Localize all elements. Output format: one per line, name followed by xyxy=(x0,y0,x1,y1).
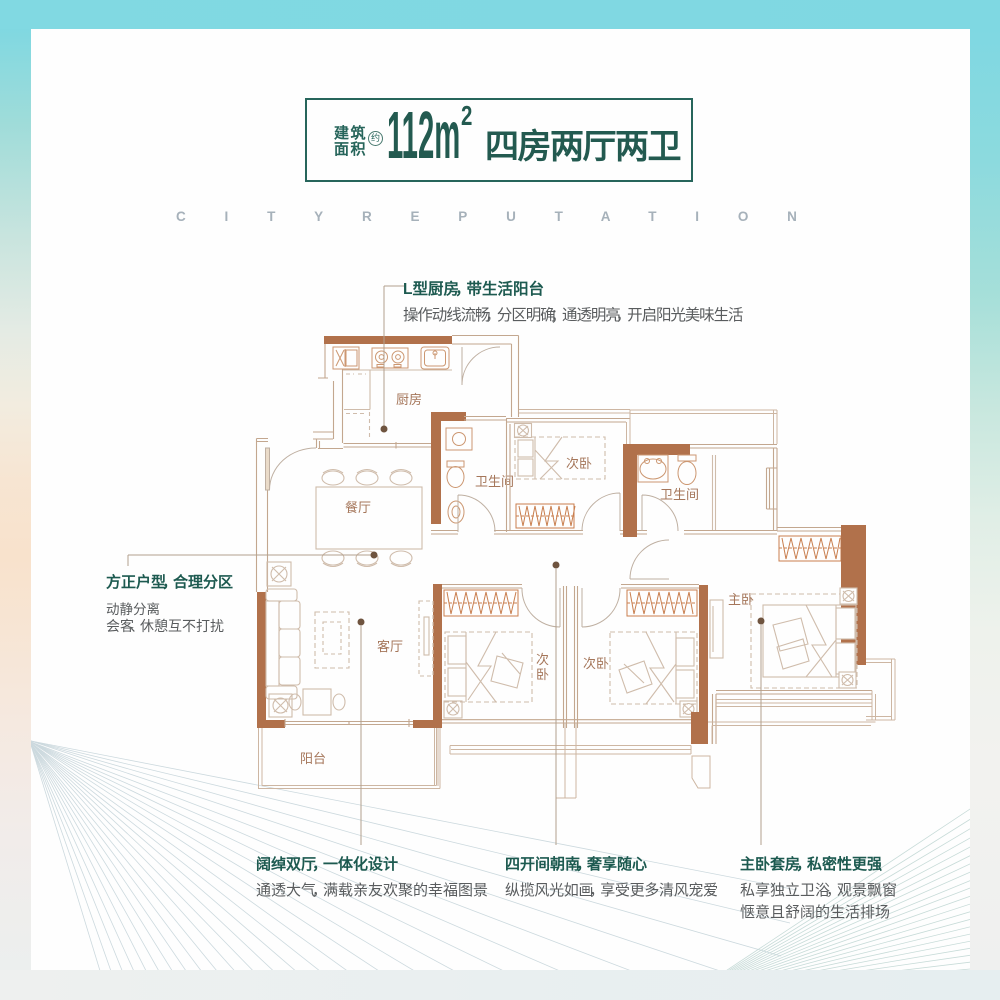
svg-text:厨房: 厨房 xyxy=(396,392,422,407)
svg-text:主卧: 主卧 xyxy=(728,592,754,607)
svg-text:阳台: 阳台 xyxy=(300,751,326,766)
svg-text:次卧: 次卧 xyxy=(583,656,609,671)
svg-text:客厅: 客厅 xyxy=(377,639,403,654)
svg-text:次: 次 xyxy=(536,652,549,667)
svg-text:餐厅: 餐厅 xyxy=(345,500,371,515)
svg-text:卧: 卧 xyxy=(536,667,549,682)
svg-text:卫生间: 卫生间 xyxy=(660,487,699,502)
svg-text:卫生间: 卫生间 xyxy=(475,474,514,489)
svg-text:次卧: 次卧 xyxy=(566,456,592,471)
